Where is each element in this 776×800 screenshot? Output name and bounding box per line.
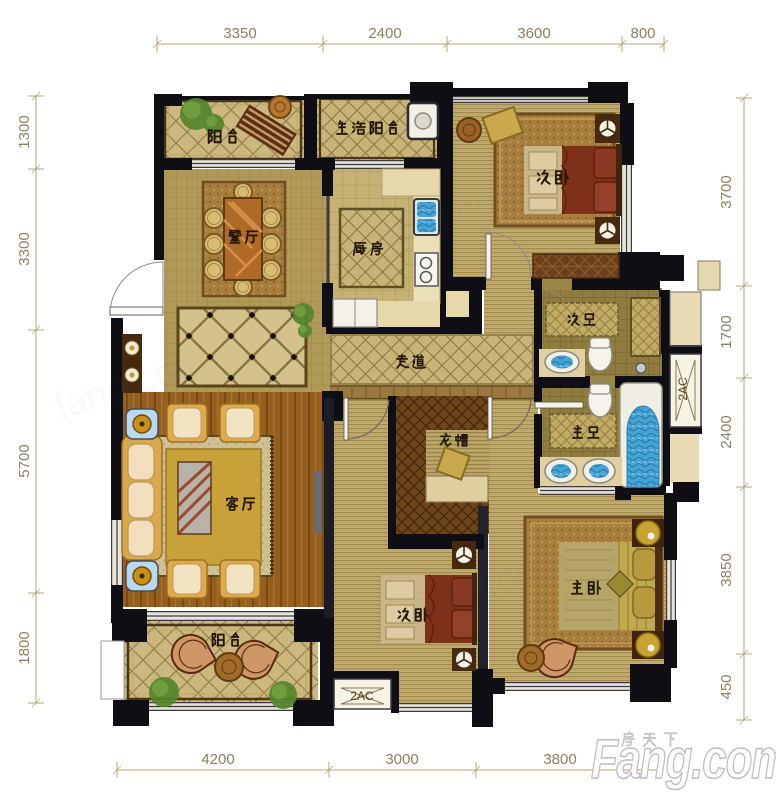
svg-text:3700: 3700 — [718, 175, 735, 208]
svg-text:3300: 3300 — [16, 232, 33, 265]
svg-text:5700: 5700 — [16, 444, 33, 477]
svg-text:800: 800 — [630, 25, 655, 42]
svg-text:2AC: 2AC — [350, 689, 374, 703]
svg-text:3350: 3350 — [223, 25, 256, 42]
svg-text:3850: 3850 — [718, 553, 735, 586]
svg-text:Fang.com: Fang.com — [591, 727, 776, 790]
svg-text:4200: 4200 — [201, 751, 234, 768]
svg-text:2400: 2400 — [368, 25, 401, 42]
svg-text:2400: 2400 — [718, 415, 735, 448]
svg-text:1800: 1800 — [16, 631, 33, 664]
svg-text:450: 450 — [718, 674, 735, 699]
svg-text:3600: 3600 — [517, 25, 550, 42]
svg-text:2AC: 2AC — [676, 377, 690, 401]
svg-text:3000: 3000 — [385, 751, 418, 768]
svg-text:3800: 3800 — [543, 751, 576, 768]
svg-text:1300: 1300 — [16, 115, 33, 148]
svg-text:1700: 1700 — [718, 315, 735, 348]
